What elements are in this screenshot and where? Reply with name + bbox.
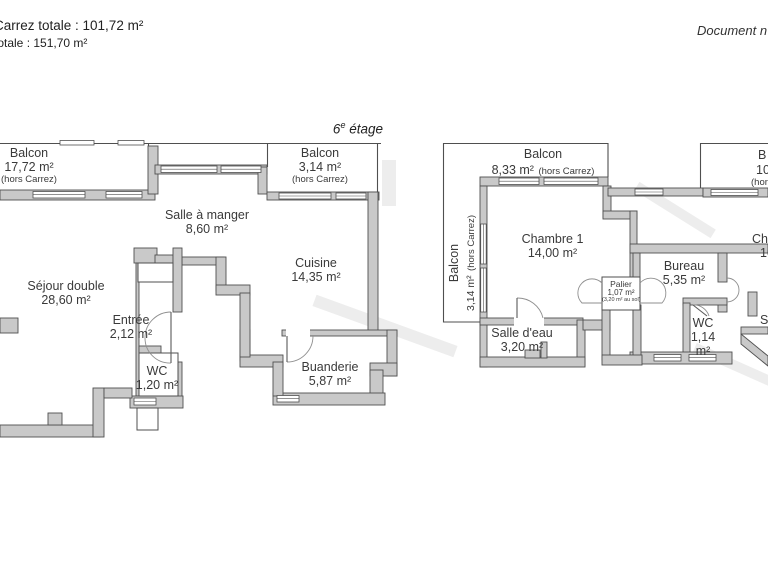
room-label-chambre-cut-1: Cha (752, 233, 768, 247)
room-label-balcon-cut-3: (hor (751, 178, 768, 188)
room-label-wc-right: WC 1,14 m² (683, 316, 723, 358)
room-label-wc-left: WC 1,20 m² (117, 364, 197, 393)
room-label-sejour: Séjour double 28,60 m² (6, 279, 126, 308)
room-label-cuisine: Cuisine 14,35 m² (266, 256, 366, 285)
room-label-balcon-1: Balcon 17,72 m² (hors Carrez) (0, 146, 69, 185)
room-label-buanderie: Buanderie 5,87 m² (280, 360, 380, 389)
room-label-bureau: Bureau 5,35 m² (634, 259, 734, 288)
header-carrez-total: Carrez totale : 101,72 m² (0, 18, 143, 33)
room-label-salle-a-manger: Salle à manger 8,60 m² (152, 208, 262, 237)
room-label-balcon-2: Balcon 3,14 m² (hors Carrez) (275, 146, 365, 185)
floor-plan-page: { "header": { "carrez_line": "Carrez tot… (0, 0, 768, 576)
room-label-balcon-cut-2: 10 (756, 164, 768, 178)
room-label-chambre-cut-2: 10 (760, 247, 768, 261)
room-label-chambre-1: Chambre 1 14,00 m² (495, 232, 610, 261)
room-label-balcon-left: Balcon 3,14 m² (hors Carrez) (447, 178, 479, 348)
floor-title: 6e étage (300, 120, 383, 137)
document-note: Document n (697, 23, 767, 38)
room-label-salle-deau: Salle d'eau 3,20 m² (472, 326, 572, 355)
header-surface-total: totale : 151,70 m² (0, 36, 87, 50)
room-label-balcon-cut-1: B (758, 149, 766, 163)
room-label-balcon-top: Balcon 8,33 m² (hors Carrez) (483, 147, 603, 179)
room-label-room-cut: S (760, 314, 768, 328)
room-label-entree: Entrée 2,12 m² (86, 313, 176, 342)
